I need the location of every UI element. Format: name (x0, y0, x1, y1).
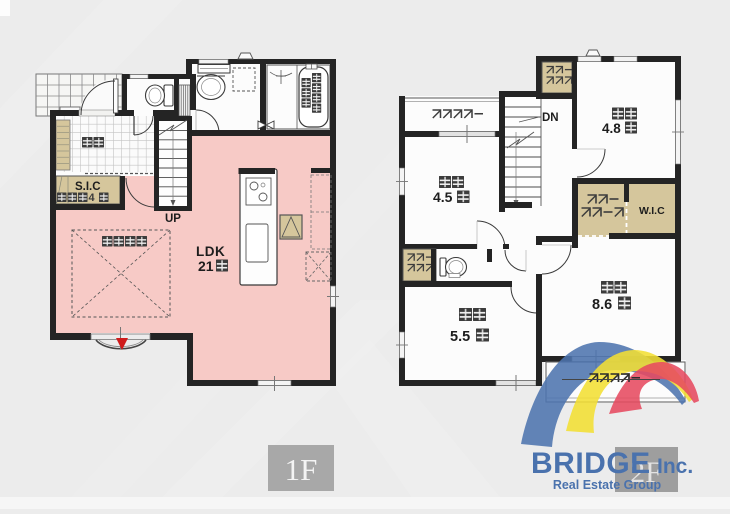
svg-text:UP: UP (165, 213, 181, 225)
svg-text:4.8: 4.8 (602, 121, 621, 136)
svg-text:8.6: 8.6 (592, 297, 612, 313)
svg-text:BRIDGE: BRIDGE (531, 447, 651, 480)
svg-text:4.5: 4.5 (433, 189, 453, 205)
svg-text:Real Estate Group: Real Estate Group (553, 478, 662, 492)
svg-text:4: 4 (89, 192, 95, 204)
svg-text:Inc.: Inc. (657, 455, 693, 478)
svg-text:1F: 1F (285, 452, 318, 487)
svg-text:21: 21 (198, 258, 214, 274)
svg-text:W.I.C: W.I.C (639, 205, 665, 217)
svg-text:DN: DN (542, 112, 559, 124)
svg-text:LDK: LDK (196, 244, 225, 259)
svg-text:5.5: 5.5 (450, 329, 470, 345)
svg-text:S.I.C: S.I.C (75, 181, 101, 193)
